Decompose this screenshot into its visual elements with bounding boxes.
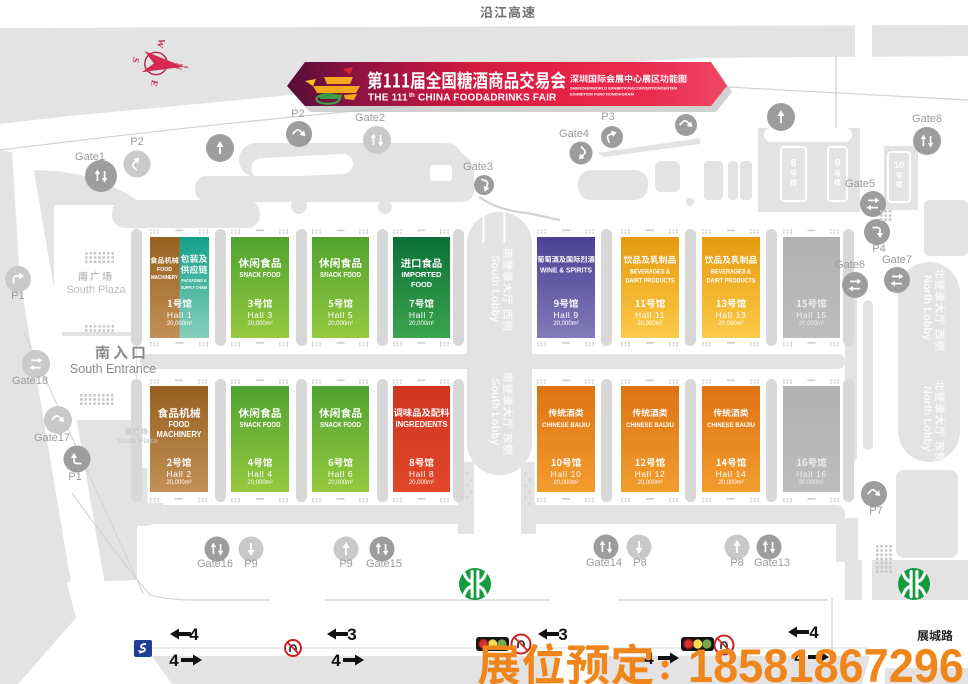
- svg-text:BEVERAGES &: BEVERAGES &: [711, 269, 751, 276]
- svg-text:3: 3: [558, 625, 567, 644]
- svg-text:10: 10: [894, 160, 904, 170]
- svg-text:3: 3: [347, 625, 356, 644]
- svg-text:EXHIBITION FUNCTIONDIAGRAM: EXHIBITION FUNCTIONDIAGRAM: [570, 92, 634, 97]
- svg-text:P8: P8: [730, 557, 743, 569]
- svg-text:MACHINERY: MACHINERY: [157, 430, 203, 439]
- svg-text:Gate1: Gate1: [75, 151, 105, 163]
- svg-text:SUPPLY CHAIN: SUPPLY CHAIN: [181, 285, 208, 290]
- svg-text:South Lobby: South Lobby: [489, 255, 501, 323]
- svg-text:18581867296: 18581867296: [688, 639, 964, 684]
- svg-text:South Entrance: South Entrance: [70, 362, 156, 376]
- svg-text:Gate16: Gate16: [197, 558, 233, 570]
- svg-text:Gate18: Gate18: [12, 375, 48, 387]
- svg-text:MACHINERY: MACHINERY: [151, 275, 178, 281]
- svg-text:20,000m²: 20,000m²: [247, 321, 272, 327]
- svg-text:Hall 11: Hall 11: [635, 310, 665, 320]
- svg-text:Hall 15: Hall 15: [796, 310, 827, 320]
- svg-text:P8: P8: [633, 557, 646, 569]
- svg-text:SNACK FOOD: SNACK FOOD: [240, 420, 281, 429]
- svg-text:9: 9: [835, 158, 841, 169]
- svg-text:CHINA FOOD&DRINKS FAIR: CHINA FOOD&DRINKS FAIR: [418, 93, 557, 104]
- svg-text:Gate7: Gate7: [882, 254, 912, 266]
- svg-text:Gate5: Gate5: [845, 178, 875, 190]
- svg-text:South Plaza: South Plaza: [117, 436, 158, 445]
- svg-text:4: 4: [189, 625, 199, 644]
- svg-text:SNACK FOOD: SNACK FOOD: [320, 270, 361, 279]
- svg-text:Hall 13: Hall 13: [716, 310, 747, 320]
- svg-text:South Plaza: South Plaza: [66, 284, 126, 296]
- svg-text:Hall 16: Hall 16: [796, 469, 827, 479]
- svg-text:SHENZHENWORLD EXHIBITION&CONVE: SHENZHENWORLD EXHIBITION&CONVENTIONCENTE…: [570, 86, 677, 91]
- svg-text:Hall 4: Hall 4: [247, 469, 272, 479]
- svg-text:20,000m²: 20,000m²: [553, 321, 578, 327]
- svg-text:DAIRT PRODUCTS: DAIRT PRODUCTS: [707, 278, 756, 285]
- svg-text:P9: P9: [244, 558, 257, 570]
- svg-text:20,000m²: 20,000m²: [166, 480, 191, 486]
- svg-text:Gate2: Gate2: [355, 112, 385, 124]
- svg-text:Hall 8: Hall 8: [409, 469, 434, 479]
- svg-text:South Lobby: South Lobby: [489, 378, 501, 446]
- svg-text:THE 111: THE 111: [368, 93, 408, 104]
- svg-text:DAIRT PRODUCTS: DAIRT PRODUCTS: [626, 278, 675, 285]
- svg-text:P2: P2: [130, 136, 143, 148]
- svg-text:P3: P3: [601, 111, 614, 123]
- svg-text:Hall 14: Hall 14: [716, 469, 747, 479]
- svg-text:8: 8: [791, 158, 797, 169]
- svg-text:Gate4: Gate4: [559, 128, 589, 140]
- svg-text:P1: P1: [68, 471, 81, 483]
- svg-text:North Lobby: North Lobby: [921, 386, 933, 452]
- svg-text:WINE & SPIRITS: WINE & SPIRITS: [540, 266, 592, 275]
- svg-text:SNACK FOOD: SNACK FOOD: [320, 420, 361, 429]
- svg-text:Hall 1: Hall 1: [167, 310, 192, 320]
- svg-text:th: th: [409, 92, 415, 99]
- svg-text:Gate6: Gate6: [835, 259, 865, 271]
- svg-text:FOOD: FOOD: [157, 267, 172, 273]
- svg-text:20,000m²: 20,000m²: [409, 321, 434, 327]
- svg-text:20,000m²: 20,000m²: [553, 480, 578, 486]
- svg-text:Gate14: Gate14: [586, 557, 622, 569]
- svg-text:20,000m²: 20,000m²: [799, 321, 824, 327]
- svg-text:SNACK FOOD: SNACK FOOD: [240, 270, 281, 279]
- svg-text:Gate17: Gate17: [34, 432, 70, 444]
- svg-text:Hall 3: Hall 3: [247, 310, 272, 320]
- svg-text:CHINESE BAIJIU: CHINESE BAIJIU: [707, 422, 755, 429]
- svg-text:20,000m²: 20,000m²: [637, 480, 662, 486]
- svg-text:Gate8: Gate8: [912, 113, 942, 125]
- svg-text:P7: P7: [869, 505, 882, 517]
- svg-text:CHINESE BAIJIU: CHINESE BAIJIU: [542, 422, 590, 429]
- svg-text:20,000m²: 20,000m²: [409, 480, 434, 486]
- svg-text:INGREDIENTS: INGREDIENTS: [396, 420, 448, 429]
- svg-text:IMPORTED: IMPORTED: [402, 270, 443, 279]
- svg-text:20,000m²: 20,000m²: [718, 480, 743, 486]
- svg-text:Gate13: Gate13: [754, 557, 790, 569]
- svg-text:Hall 12: Hall 12: [635, 469, 666, 479]
- svg-text:P2: P2: [291, 108, 304, 120]
- svg-text:Hall 10: Hall 10: [551, 469, 582, 479]
- svg-text:Gate15: Gate15: [366, 558, 402, 570]
- svg-text:4: 4: [169, 651, 179, 670]
- svg-text:Hall 5: Hall 5: [328, 310, 353, 320]
- svg-text:Hall 7: Hall 7: [409, 310, 434, 320]
- svg-text:20,000m²: 20,000m²: [637, 321, 662, 327]
- svg-text:North Lobby: North Lobby: [921, 275, 933, 341]
- svg-text:FOOD: FOOD: [169, 420, 190, 429]
- svg-text:20,000m²: 20,000m²: [247, 480, 272, 486]
- svg-text:Hall 9: Hall 9: [553, 310, 578, 320]
- svg-text:P1: P1: [11, 290, 24, 302]
- svg-text:4: 4: [331, 651, 341, 670]
- svg-text:20,000m²: 20,000m²: [328, 321, 353, 327]
- svg-text:Hall 6: Hall 6: [328, 469, 353, 479]
- svg-text:Hall 2: Hall 2: [166, 469, 191, 479]
- svg-text:FOOD: FOOD: [411, 280, 433, 289]
- svg-text:20,000m²: 20,000m²: [718, 321, 743, 327]
- svg-text:BEVERAGES &: BEVERAGES &: [630, 269, 670, 276]
- svg-text:20,000m²: 20,000m²: [799, 480, 824, 486]
- svg-text:Gate3: Gate3: [463, 161, 493, 173]
- svg-text:20,000m²: 20,000m²: [167, 321, 192, 327]
- svg-text:20,000m²: 20,000m²: [328, 480, 353, 486]
- svg-text:CHINESE BAIJIU: CHINESE BAIJIU: [626, 422, 674, 429]
- svg-text:PACKAGING &: PACKAGING &: [182, 278, 208, 283]
- svg-text:P9: P9: [339, 558, 352, 570]
